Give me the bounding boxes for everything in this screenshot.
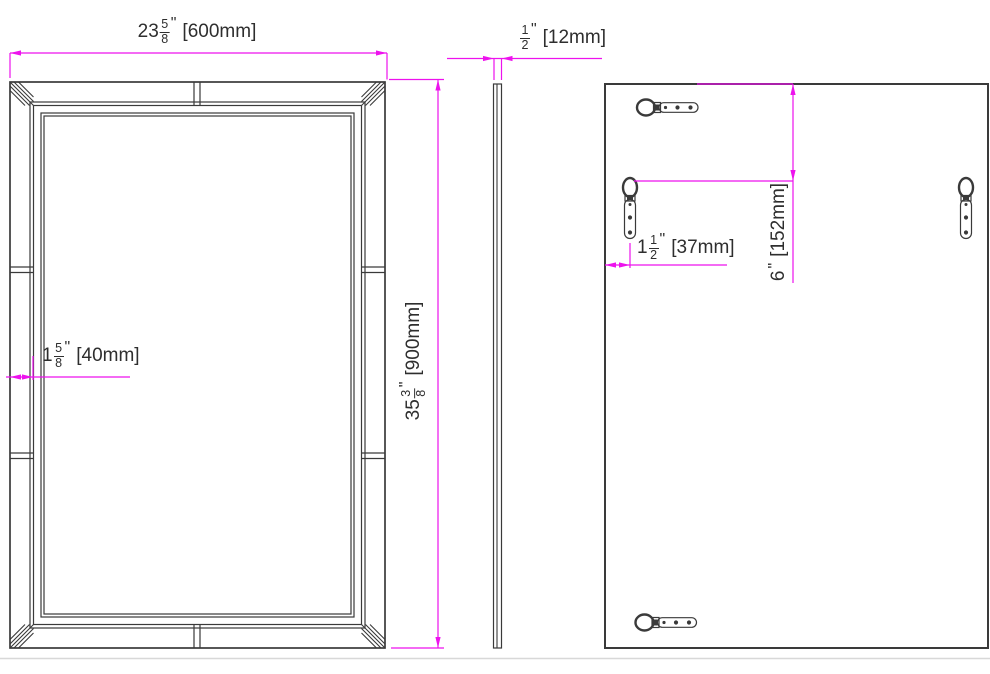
dim-height-fraction: 38	[400, 388, 428, 398]
dim-width-unit: "	[171, 16, 177, 33]
dimension-hanger-drop-label: 6"[152mm]	[769, 183, 789, 281]
keyhole-hanger-top-left-icon	[637, 100, 698, 116]
side-view	[494, 84, 502, 648]
dimension-thickness-label: 12"[12mm]	[519, 24, 606, 52]
dimension-thickness	[447, 56, 602, 80]
d-ring-hanger-right-icon	[959, 178, 973, 239]
dim-frame-whole: 1	[42, 346, 53, 366]
dim-hanger-inset-fraction: 12	[649, 234, 659, 262]
dimension-frame-width-label: 158"[40mm]	[42, 342, 140, 370]
back-view	[605, 84, 988, 648]
dim-width-whole: 23	[138, 22, 159, 42]
d-ring-hanger-left-icon	[623, 178, 637, 239]
dim-frame-fraction: 58	[54, 342, 64, 370]
dim-frame-unit: "	[65, 340, 71, 357]
dim-thickness-metric: [12mm]	[543, 28, 606, 48]
dim-hanger-inset-whole: 1	[637, 238, 648, 258]
dim-hanger-drop-whole: 6	[769, 271, 789, 282]
dimension-hanger-inset-label: 112"[37mm]	[637, 234, 735, 262]
miter-corner-bottom-right	[362, 625, 386, 649]
dim-hanger-drop-unit: "	[767, 263, 784, 269]
back-panel-outline	[605, 84, 988, 648]
dimension-width-label: 2358"[600mm]	[138, 18, 257, 46]
drawing-canvas	[0, 0, 990, 674]
keyhole-hanger-bottom-left-icon	[636, 615, 697, 631]
dim-thickness-fraction: 12	[520, 24, 530, 52]
dim-hanger-drop-metric: [152mm]	[769, 183, 789, 257]
dimension-width	[10, 50, 387, 79]
dim-height-whole: 35	[404, 399, 424, 420]
dim-width-metric: [600mm]	[182, 22, 256, 42]
miter-corner-top-right	[362, 82, 386, 106]
miter-corner-top-left	[10, 82, 34, 106]
dimension-height-label: 3538"[900mm]	[400, 302, 428, 421]
dim-width-fraction: 58	[160, 18, 170, 46]
dim-hanger-inset-metric: [37mm]	[671, 238, 734, 258]
dim-height-unit: "	[398, 382, 415, 388]
technical-drawing-page: 2358"[600mm] 12"[12mm] 158"[40mm] 3538"[…	[0, 0, 990, 674]
miter-corner-bottom-left	[10, 625, 34, 649]
dim-height-metric: [900mm]	[404, 302, 424, 376]
dim-thickness-unit: "	[531, 22, 537, 39]
dim-hanger-inset-unit: "	[660, 232, 666, 249]
dim-frame-metric: [40mm]	[76, 346, 139, 366]
